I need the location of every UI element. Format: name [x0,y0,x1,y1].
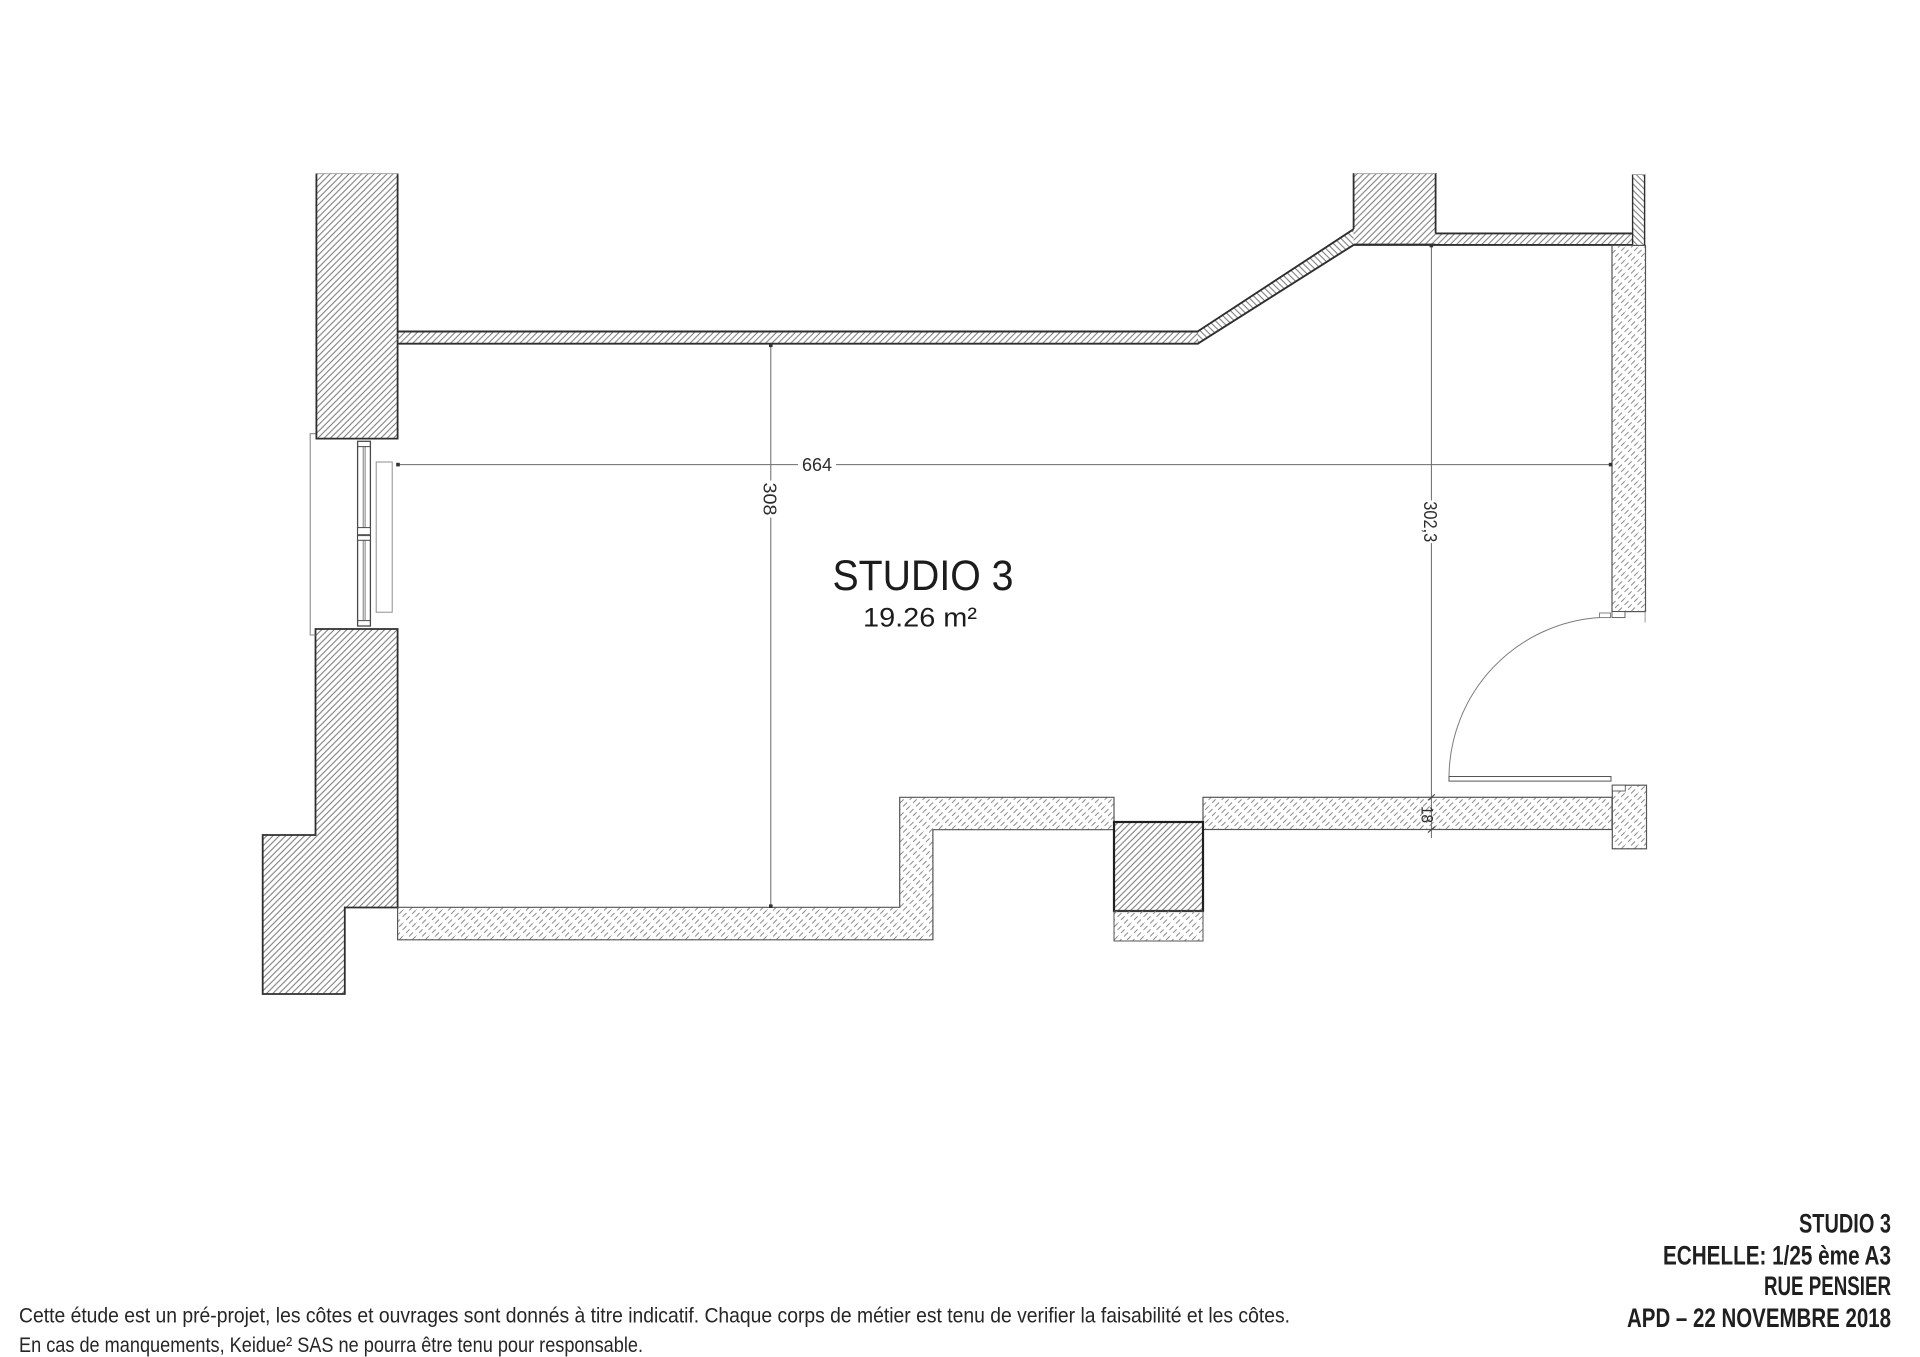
svg-text:302,3: 302,3 [1420,501,1441,542]
svg-text:19.26 m²: 19.26 m² [863,603,977,633]
svg-text:STUDIO 3: STUDIO 3 [1799,1209,1891,1239]
svg-text:STUDIO 3: STUDIO 3 [833,552,1014,600]
svg-text:RUE PENSIER: RUE PENSIER [1764,1271,1891,1301]
svg-text:18: 18 [1418,806,1436,823]
svg-text:ECHELLE: 1/25 ème A3: ECHELLE: 1/25 ème A3 [1663,1241,1891,1271]
svg-text:308: 308 [760,483,781,516]
svg-text:Cette étude est un pré-projet: Cette étude est un pré-projet, les côtes… [19,1305,1290,1328]
svg-text:En cas de manquements, Keidue²: En cas de manquements, Keidue² SAS ne po… [19,1334,643,1357]
svg-text:664: 664 [802,454,832,475]
svg-text:APD – 22 NOVEMBRE 2018: APD – 22 NOVEMBRE 2018 [1627,1303,1891,1333]
